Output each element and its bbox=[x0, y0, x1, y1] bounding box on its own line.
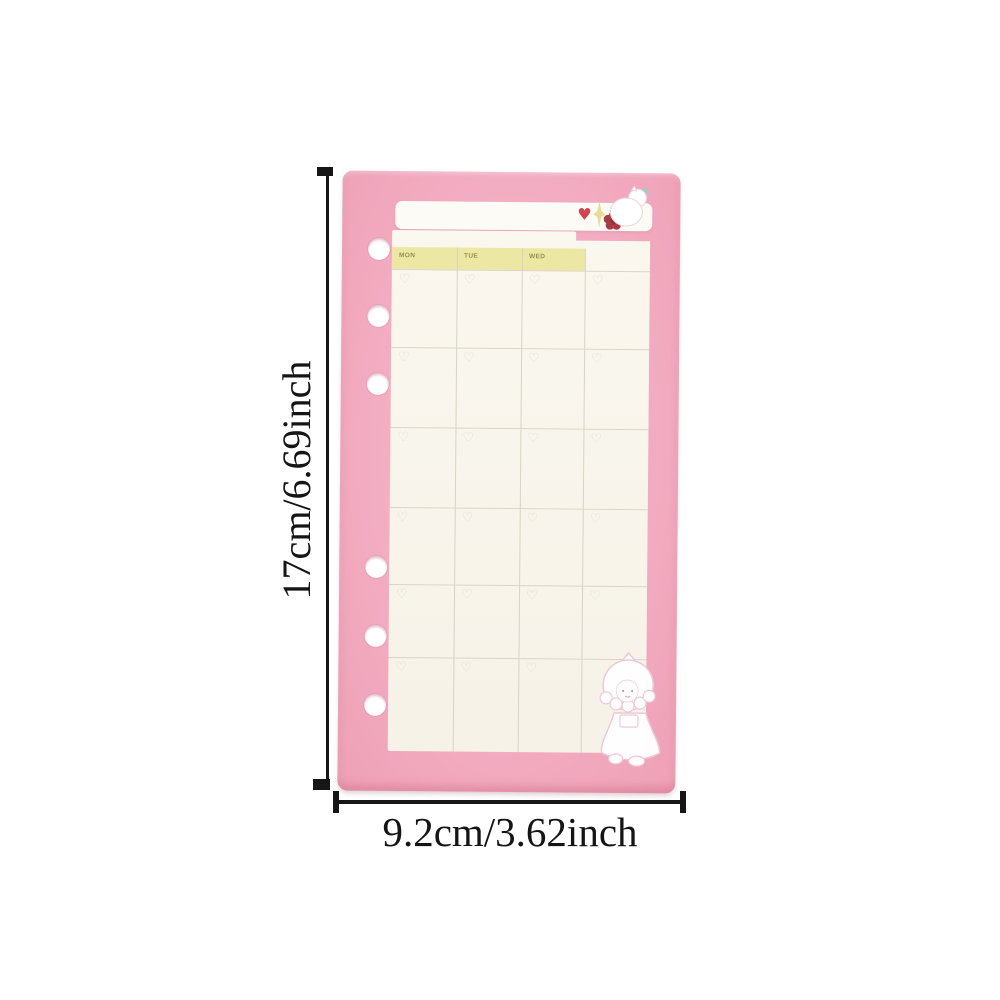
girl-character-illustration bbox=[590, 651, 671, 770]
heart-outline-icon: ♡ bbox=[398, 351, 410, 364]
heart-outline-icon: ♡ bbox=[462, 512, 474, 525]
product-photo: 17cm/6.69inch 9.2cm/3.62inch ♥ bbox=[0, 0, 1000, 1000]
binder-hole bbox=[364, 694, 386, 716]
horizontal-dimension-line bbox=[339, 800, 681, 804]
weekday-label-tue: TUE bbox=[464, 253, 522, 261]
grid-line bbox=[453, 248, 458, 752]
heart-outline-icon: ♡ bbox=[395, 661, 407, 674]
width-dimension-label: 9.2cm/3.62inch bbox=[335, 808, 685, 856]
vertical-dimension-bottom-cap bbox=[313, 779, 330, 790]
heart-outline-icon: ♡ bbox=[529, 274, 541, 287]
binder-hole bbox=[365, 625, 387, 647]
grid-line bbox=[518, 248, 523, 752]
heart-outline-icon: ♡ bbox=[589, 590, 601, 603]
heart-outline-icon: ♡ bbox=[461, 589, 473, 602]
weekday-label-mon: MON bbox=[399, 252, 457, 260]
heart-outline-icon: ♡ bbox=[590, 513, 602, 526]
vertical-dimension-line bbox=[326, 176, 329, 779]
binder-hole bbox=[365, 556, 387, 578]
red-heart-icon: ♥ bbox=[577, 205, 592, 225]
binder-hole bbox=[367, 305, 389, 327]
heart-outline-icon: ♡ bbox=[527, 432, 539, 445]
heart-outline-icon: ♡ bbox=[592, 275, 604, 288]
height-dimension-label: 17cm/6.69inch bbox=[273, 280, 321, 680]
heart-outline-icon: ♡ bbox=[397, 511, 409, 524]
heart-outline-icon: ♡ bbox=[590, 433, 602, 446]
heart-outline-icon: ♡ bbox=[527, 512, 539, 525]
heart-outline-icon: ♡ bbox=[591, 353, 603, 366]
title-banner: ♥ bbox=[395, 201, 652, 231]
heart-outline-icon: ♡ bbox=[399, 273, 411, 286]
binder-hole bbox=[368, 238, 390, 260]
heart-outline-icon: ♡ bbox=[526, 589, 538, 602]
planner-page: ♥ MON TUE bbox=[337, 171, 680, 794]
heart-outline-icon: ♡ bbox=[397, 431, 409, 444]
heart-outline-icon: ♡ bbox=[460, 662, 472, 675]
weekday-header-row: MON TUE WED bbox=[392, 247, 585, 271]
white-cat-icon bbox=[609, 185, 649, 229]
heart-outline-icon: ♡ bbox=[528, 352, 540, 365]
heart-outline-icon: ♡ bbox=[396, 588, 408, 601]
heart-outline-icon: ♡ bbox=[462, 432, 474, 445]
weekday-label-wed: WED bbox=[529, 253, 587, 261]
binder-hole bbox=[367, 373, 389, 395]
heart-outline-icon: ♡ bbox=[464, 274, 476, 287]
heart-outline-icon: ♡ bbox=[463, 352, 475, 365]
grid-line bbox=[581, 249, 586, 753]
vertical-dimension-top-cap bbox=[317, 167, 333, 176]
heart-outline-icon: ♡ bbox=[525, 662, 537, 675]
